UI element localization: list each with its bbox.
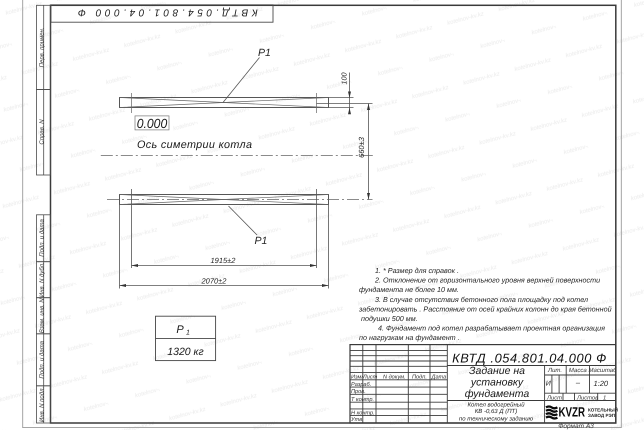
svg-text:Формат А3: Формат А3 [558, 423, 594, 430]
svg-text:фундамента не более 10 мм.: фундамента не более 10 мм. [359, 285, 459, 294]
svg-text:Котел водогрейный: Котел водогрейный [467, 401, 525, 408]
svg-text:КВ -0,63 Д (ПТ): КВ -0,63 Д (ПТ) [475, 408, 517, 415]
svg-text:Изм/Лист: Изм/Лист [351, 374, 378, 381]
svg-text:Т контр.: Т контр. [351, 397, 374, 403]
svg-text:Ось симетрии котла: Ось симетрии котла [137, 139, 252, 151]
svg-text:100: 100 [339, 73, 348, 85]
svg-text:Листов: Листов [576, 395, 598, 401]
svg-text:Масса: Масса [569, 367, 587, 374]
svg-text:Р1: Р1 [255, 235, 268, 247]
svg-text:Утв.: Утв. [350, 417, 364, 423]
svg-text:Р: Р [176, 324, 184, 336]
svg-text:Подп. и дата: Подп. и дата [39, 219, 46, 257]
svg-text:–: – [575, 378, 581, 387]
svg-text:Пров.: Пров. [351, 389, 366, 395]
svg-text:2070±2: 2070±2 [201, 277, 228, 286]
svg-text:установку: установку [470, 377, 524, 389]
svg-text:N докум.: N докум. [383, 374, 406, 381]
svg-text:по техническому заданию: по техническому заданию [459, 416, 534, 423]
svg-text:Р1: Р1 [258, 47, 271, 59]
svg-text:1: 1 [186, 330, 190, 337]
svg-text:660±3: 660±3 [357, 136, 366, 158]
svg-text:Перв. примен.: Перв. примен. [39, 27, 46, 67]
svg-text:1915±2: 1915±2 [211, 256, 237, 265]
svg-text:Лист: Лист [546, 395, 562, 401]
svg-text:KVZR: KVZR [559, 405, 586, 420]
svg-text:ЗАВОД РЭП: ЗАВОД РЭП [588, 413, 615, 418]
svg-text:Подп. и дата: Подп. и дата [39, 340, 46, 378]
svg-text:Н контр.: Н контр. [351, 410, 375, 416]
svg-text:Задание на: Задание на [469, 365, 525, 377]
svg-text:Инв. N подл.: Инв. N подл. [39, 387, 46, 422]
svg-text:КОТЕЛЬНЫЙ: КОТЕЛЬНЫЙ [588, 407, 618, 413]
svg-text:по нагрузкам на фундамент .: по нагрузкам на фундамент . [359, 333, 460, 342]
svg-text:4. Фундамент под котел разраба: 4. Фундамент под котел разрабатывает про… [378, 324, 605, 333]
svg-text:Лит.: Лит. [547, 367, 562, 374]
svg-text:Инв. N дубл.: Инв. N дубл. [39, 262, 46, 297]
svg-text:0.000: 0.000 [137, 116, 168, 131]
svg-text:Разраб.: Разраб. [351, 381, 371, 388]
svg-text:1. * Размер для справок .: 1. * Размер для справок . [375, 266, 459, 275]
svg-text:Масштаб: Масштаб [588, 367, 617, 374]
svg-text:1320 кг: 1320 кг [167, 346, 203, 358]
svg-text:Дата: Дата [431, 375, 447, 381]
svg-text:Подп.: Подп. [412, 374, 427, 381]
svg-text:1: 1 [603, 395, 606, 401]
svg-text:Взам. инв. N: Взам. инв. N [39, 298, 46, 334]
svg-text:КВТД .054.801.04.000 Ф: КВТД .054.801.04.000 Ф [452, 351, 607, 366]
svg-text:3. В случае отсутствия бетонно: 3. В случае отсутствия бетонного пола пл… [375, 295, 588, 304]
svg-text:Справ. N: Справ. N [39, 119, 46, 145]
svg-text:фундамента: фундамента [465, 388, 530, 400]
svg-text:КВТД.054.801.04.000 Ф: КВТД.054.801.04.000 Ф [74, 7, 257, 18]
svg-text:забетонировать . Расстояние от: забетонировать . Расстояние от осей край… [358, 304, 612, 313]
svg-text:2. Отклонение от горизонтально: 2. Отклонение от горизонтального уровня … [374, 276, 600, 285]
svg-text:1:20: 1:20 [593, 379, 608, 388]
svg-text:подушки 500 мм.: подушки 500 мм. [361, 314, 418, 323]
